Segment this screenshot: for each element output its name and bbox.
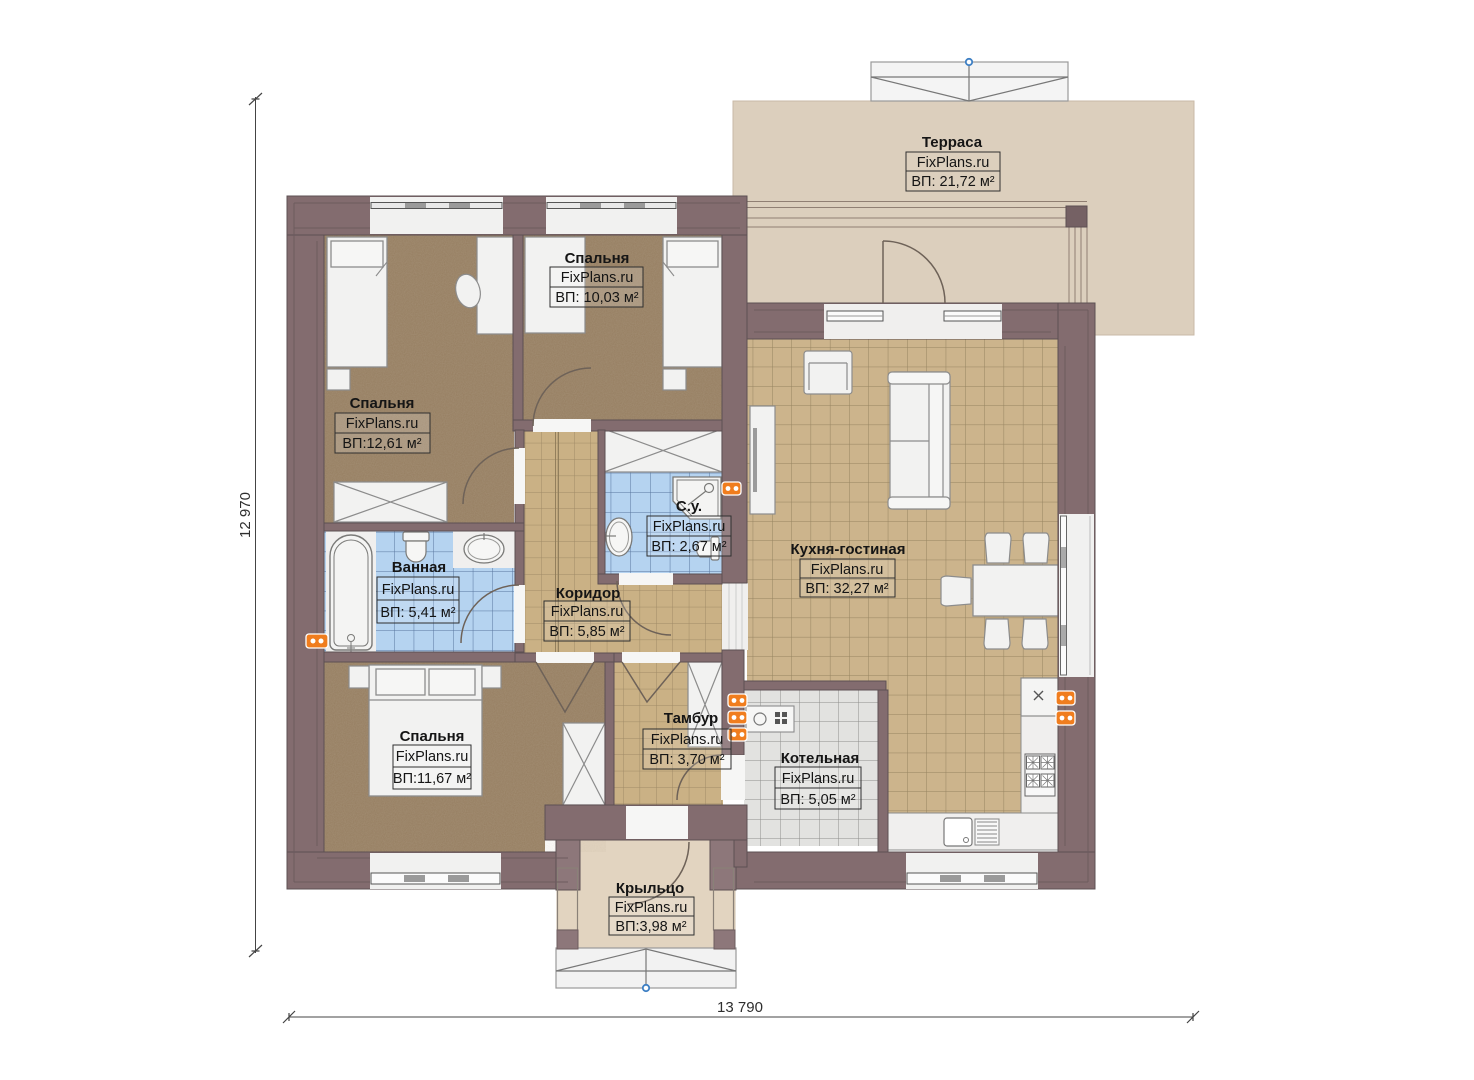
svg-text:Крыльцо: Крыльцо bbox=[616, 880, 684, 897]
svg-text:ВП: 2,67 м²: ВП: 2,67 м² bbox=[651, 539, 726, 555]
svg-text:FixPlans.ru: FixPlans.ru bbox=[396, 749, 469, 765]
svg-text:Тамбур: Тамбур bbox=[664, 710, 718, 727]
svg-text:Кухня-гостиная: Кухня-гостиная bbox=[791, 541, 906, 558]
svg-text:С.у.: С.у. bbox=[676, 498, 702, 515]
svg-text:FixPlans.ru: FixPlans.ru bbox=[561, 270, 634, 286]
svg-text:ВП:11,67 м²: ВП:11,67 м² bbox=[393, 771, 471, 787]
svg-text:ВП: 5,05 м²: ВП: 5,05 м² bbox=[780, 792, 855, 808]
svg-text:Ванная: Ванная bbox=[392, 559, 446, 576]
svg-text:FixPlans.ru: FixPlans.ru bbox=[651, 732, 724, 748]
svg-text:ВП: 5,41 м²: ВП: 5,41 м² bbox=[380, 605, 455, 621]
svg-text:ВП: 32,27 м²: ВП: 32,27 м² bbox=[805, 581, 888, 597]
svg-text:ВП:12,61 м²: ВП:12,61 м² bbox=[342, 436, 421, 452]
svg-text:Спальня: Спальня bbox=[400, 728, 465, 745]
svg-text:Коридор: Коридор bbox=[556, 585, 621, 602]
svg-text:ВП: 3,70 м²: ВП: 3,70 м² bbox=[649, 752, 724, 768]
svg-text:FixPlans.ru: FixPlans.ru bbox=[615, 900, 688, 916]
svg-text:FixPlans.ru: FixPlans.ru bbox=[653, 519, 726, 535]
svg-text:12 970: 12 970 bbox=[237, 492, 254, 538]
svg-text:ВП:3,98 м²: ВП:3,98 м² bbox=[615, 919, 686, 935]
svg-text:FixPlans.ru: FixPlans.ru bbox=[551, 604, 624, 620]
svg-text:Терраса: Терраса bbox=[922, 134, 983, 151]
svg-text:FixPlans.ru: FixPlans.ru bbox=[382, 582, 455, 598]
svg-text:FixPlans.ru: FixPlans.ru bbox=[917, 155, 990, 171]
svg-text:FixPlans.ru: FixPlans.ru bbox=[811, 562, 884, 578]
svg-text:ВП: 10,03 м²: ВП: 10,03 м² bbox=[555, 290, 638, 306]
svg-text:ВП: 5,85 м²: ВП: 5,85 м² bbox=[549, 624, 624, 640]
svg-text:FixPlans.ru: FixPlans.ru bbox=[782, 771, 855, 787]
svg-text:Спальня: Спальня bbox=[565, 250, 630, 267]
svg-text:13 790: 13 790 bbox=[717, 999, 763, 1016]
svg-text:Котельная: Котельная bbox=[781, 750, 860, 767]
svg-text:ВП: 21,72 м²: ВП: 21,72 м² bbox=[911, 174, 994, 190]
svg-text:FixPlans.ru: FixPlans.ru bbox=[346, 416, 419, 432]
svg-text:Спальня: Спальня bbox=[350, 395, 415, 412]
